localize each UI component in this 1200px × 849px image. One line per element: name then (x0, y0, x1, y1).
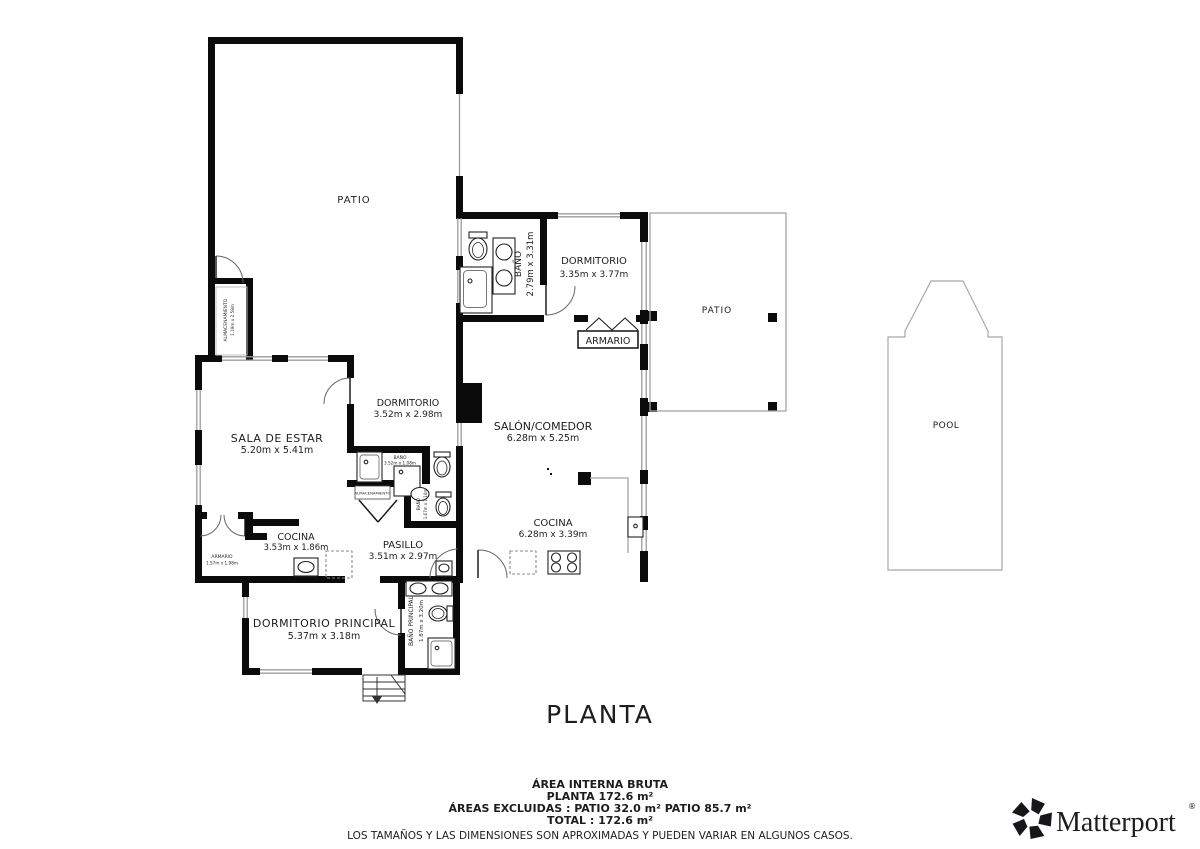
almacenamiento-left-label: ALMACENAMIENTO (223, 298, 229, 341)
double-sink-bano-top (493, 238, 515, 294)
kitchen-counter-line (590, 478, 628, 553)
walls (195, 37, 777, 675)
pool-label: POOL (933, 421, 960, 431)
bano-hall-label: BAÑO (416, 497, 421, 510)
sink-pasillo (436, 561, 452, 576)
armario-bottom-dims: 1.57m x 1.98m (206, 561, 238, 566)
matterport-registered-mark: ® (1188, 802, 1196, 811)
sala-de-estar-dims: 5.20m x 5.41m (241, 445, 313, 456)
dormitorio-mid-dims: 3.52m x 2.98m (374, 410, 443, 420)
cocina-left-label: COCINA (277, 532, 315, 543)
appliance-dashed-left (326, 551, 352, 578)
patio-main-label: PATIO (337, 195, 370, 206)
sala-de-estar-label: SALA DE ESTAR (231, 432, 324, 445)
stove-cocina-right (548, 551, 580, 574)
pasillo-label: PASILLO (383, 540, 423, 551)
dormitorio-principal-label: DORMITORIO PRINCIPAL (253, 617, 396, 630)
salon-comedor-dims: 6.28m x 5.25m (507, 433, 579, 444)
shower-bano-top (460, 267, 492, 313)
matterport-wordmark: Matterport (1056, 807, 1176, 838)
matterport-pinwheel-icon (1012, 798, 1052, 839)
bano-principal-label: BAÑO PRINCIPAL (408, 595, 415, 646)
dormitorio-principal-dims: 5.37m x 3.18m (288, 631, 360, 642)
pasillo-dims: 3.51m x 2.97m (369, 552, 438, 562)
bano-hall-dims: 1.67m x 1.10m (423, 489, 428, 520)
dormitorio-mid-label: DORMITORIO (377, 398, 440, 409)
sink-cocina-right (628, 517, 643, 537)
cocina-left-dims: 3.53m x 1.86m (264, 543, 329, 553)
patio-right-label: PATIO (702, 306, 733, 316)
toilet-bano-principal (429, 606, 453, 621)
summary-total-line: TOTAL : 172.6 m² (547, 814, 653, 827)
cocina-right-dims: 6.28m x 3.39m (519, 530, 588, 540)
bano-small-dims: 3.52m x 1.08m (384, 461, 416, 466)
armario-bottom-label: ARMARIO (211, 554, 233, 560)
stairs (363, 675, 405, 703)
area-summary: ÁREA INTERNA BRUTA PLANTA 172.6 m² ÁREAS… (347, 778, 853, 842)
floor-plan-page: PATIO PATIO POOL BAÑO 2.79m x 3.31m DORM… (0, 0, 1200, 849)
sink-cocina-left (294, 558, 318, 576)
toilet-bano-top (469, 232, 487, 260)
bano-top-label: BAÑO (513, 251, 524, 277)
armario-top-label: ARMARIO (586, 336, 631, 347)
floor-plan-canvas: PATIO PATIO POOL BAÑO 2.79m x 3.31m DORM… (0, 0, 1200, 849)
almacenamiento-box-label: ALMACENAMIENTO (355, 491, 391, 496)
shower-bano-small (357, 452, 382, 482)
dormitorio-top-dims: 3.35m x 3.77m (560, 270, 629, 280)
summary-disclaimer: LOS TAMAÑOS Y LAS DIMENSIONES SON APROXI… (347, 829, 853, 842)
armario-sliding-door (586, 318, 638, 330)
appliance-dashed-right (510, 551, 536, 574)
cocina-right-label: COCINA (533, 518, 572, 529)
toilet-bano-small (434, 452, 450, 477)
salon-comedor-label: SALÓN/COMEDOR (494, 420, 593, 433)
bano-top-dims: 2.79m x 3.31m (526, 232, 536, 297)
toilet-bano-hall (436, 492, 451, 516)
shower-bano-principal (428, 638, 455, 669)
plan-title: PLANTA (546, 700, 654, 729)
dormitorio-top-label: DORMITORIO (561, 256, 627, 267)
bano-principal-dims: 1.87m x 3.20m (419, 600, 425, 642)
matterport-logo: Matterport ® (1012, 798, 1196, 839)
double-sink-bano-principal (406, 581, 452, 596)
almacenamiento-left-dims: 1.19m x 2.58m (230, 304, 235, 336)
